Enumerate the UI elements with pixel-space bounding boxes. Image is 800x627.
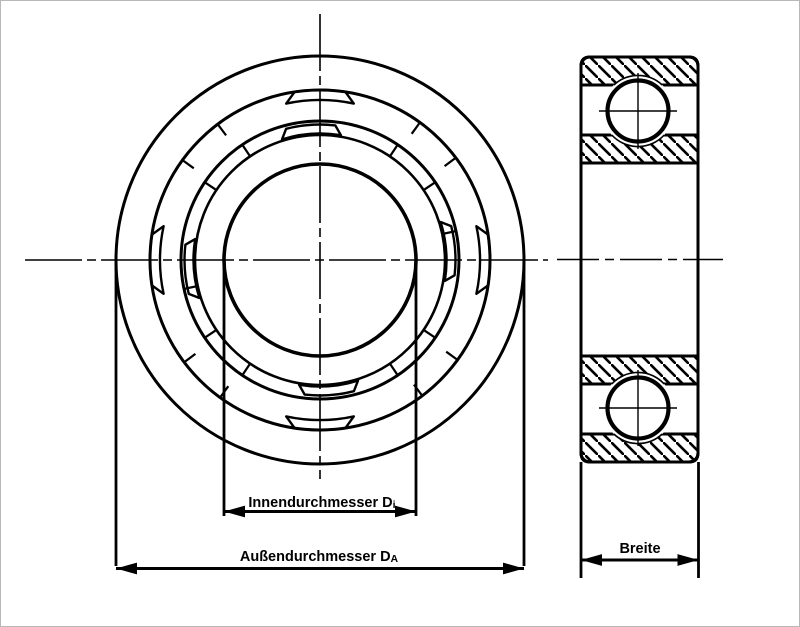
width-arrowhead-left (581, 554, 602, 566)
cage-divider-inner (424, 182, 436, 190)
cage-divider-inner (390, 364, 398, 376)
cage-pocket-inner (282, 125, 341, 140)
cage-divider-inner (242, 145, 250, 157)
outer-diameter-arrowhead-left (116, 563, 137, 575)
label-width-text: Breite (619, 541, 660, 557)
cage-divider-inner (424, 330, 436, 338)
technical-drawing-canvas: Innendurchmesser Di Außendurchmesser DA … (0, 0, 800, 627)
inner-diameter-arrowhead-left (224, 506, 245, 518)
outer-diameter-arrowhead-right (503, 563, 524, 575)
label-outer-diameter-text: Außendurchmesser D (240, 549, 391, 565)
label-outer-diameter-subscript: A (391, 553, 399, 565)
cage-pocket-inner (299, 381, 358, 396)
cage-divider-outer (446, 352, 457, 360)
cage-divider-outer (218, 124, 226, 135)
cage-divider-outer (412, 123, 420, 134)
label-inner-diameter-subscript: i (393, 499, 396, 511)
ball-bearing-drawing: Innendurchmesser Di Außendurchmesser DA … (0, 0, 800, 627)
cage-divider-inner (205, 330, 217, 338)
inner-diameter-arrowhead-right (395, 506, 416, 518)
cage-divider-outer (445, 158, 456, 166)
label-width: Breite (619, 541, 660, 557)
cage-divider-inner (242, 364, 250, 376)
label-outer-diameter: Außendurchmesser DA (240, 549, 399, 565)
front-view-ball-bearing (25, 14, 548, 479)
side-view-bearing-section (557, 57, 723, 462)
width-arrowhead-right (678, 554, 699, 566)
cage-divider-outer (184, 354, 195, 362)
cage-divider-inner (390, 145, 398, 157)
label-inner-diameter: Innendurchmesser Di (248, 495, 395, 511)
label-inner-diameter-text: Innendurchmesser D (248, 495, 392, 511)
cage-divider-inner (205, 182, 217, 190)
cage-divider-outer (183, 160, 194, 168)
